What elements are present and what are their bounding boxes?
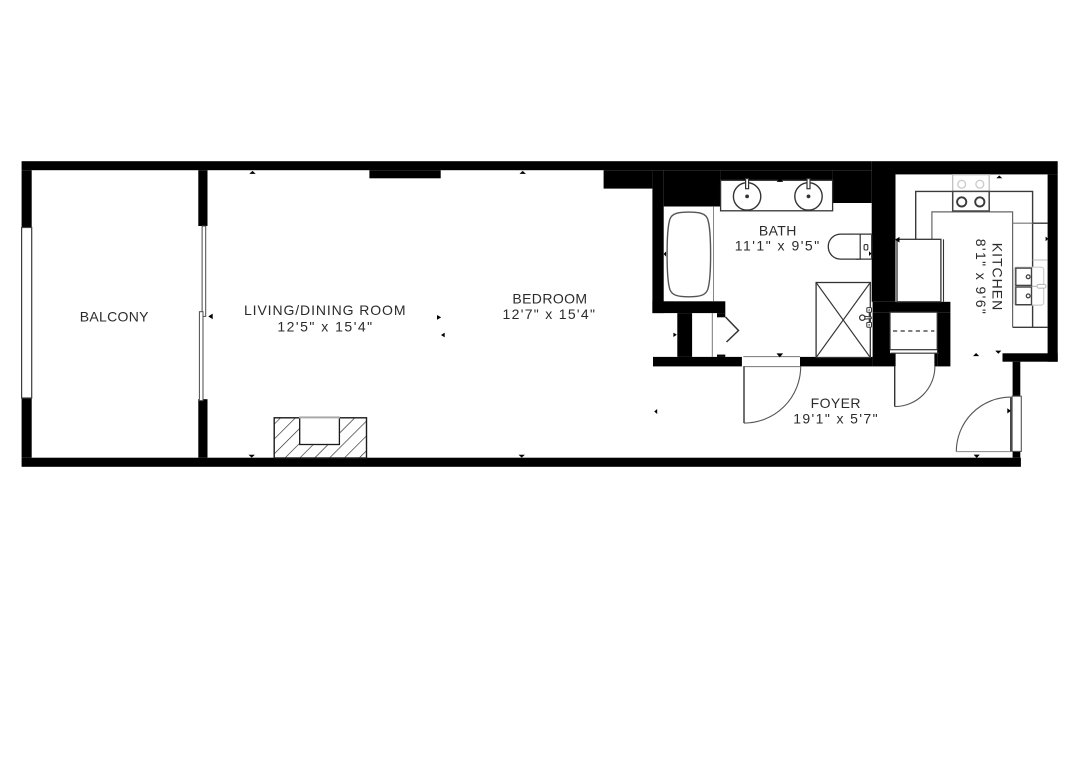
- svg-text:KITCHEN: KITCHEN: [990, 243, 1006, 311]
- svg-text:LIVING/DINING ROOM: LIVING/DINING ROOM: [244, 302, 406, 318]
- svg-text:BEDROOM: BEDROOM: [512, 290, 587, 306]
- svg-text:FOYER: FOYER: [811, 395, 861, 411]
- svg-text:8'1" x 9'6": 8'1" x 9'6": [973, 239, 989, 316]
- svg-text:BATH: BATH: [759, 223, 797, 239]
- svg-text:BALCONY: BALCONY: [80, 309, 149, 325]
- svg-text:19'1" x 5'7": 19'1" x 5'7": [793, 411, 879, 427]
- svg-text:12'5" x 15'4": 12'5" x 15'4": [277, 318, 373, 334]
- svg-text:12'7" x 15'4": 12'7" x 15'4": [503, 306, 597, 322]
- svg-text:11'1" x 9'5": 11'1" x 9'5": [735, 238, 821, 254]
